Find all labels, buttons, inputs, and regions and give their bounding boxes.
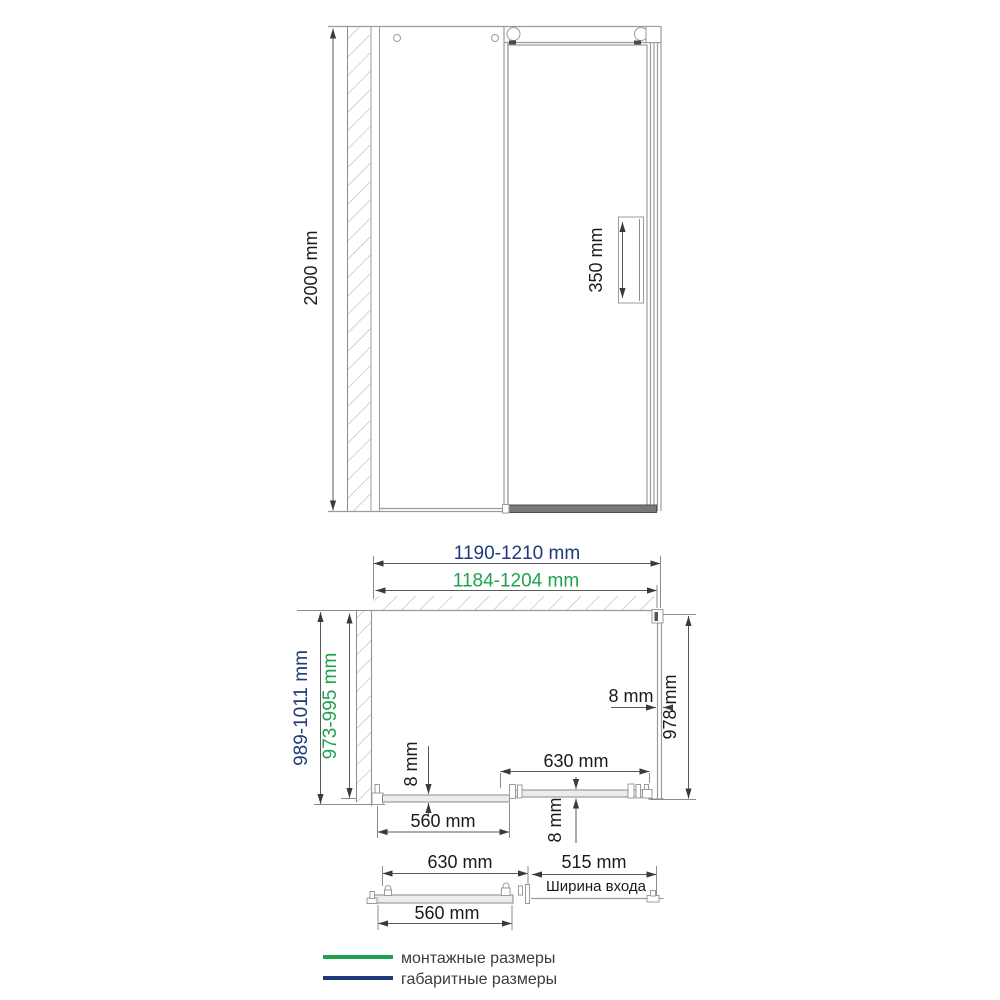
top-wall-hatch <box>297 596 663 611</box>
overall-dimensions-swatch <box>323 976 393 980</box>
sliding-door-panel <box>511 790 648 797</box>
corner-bracket <box>643 790 653 799</box>
roller-carriage-icon <box>510 785 516 799</box>
open-fixed-panel-width-label: 560 mm <box>414 903 479 923</box>
legend: монтажные размеры габаритные размеры <box>323 950 557 988</box>
open-door-view: 630 mm 515 mm Ширина входа 560 mm <box>367 852 664 930</box>
entry-width-caption: Ширина входа <box>546 878 647 895</box>
entry-width-label: 515 mm <box>561 852 626 872</box>
fixing-screw-icon <box>394 35 401 42</box>
mounting-dimensions-label: монтажные размеры <box>401 950 555 967</box>
rail-end-bracket <box>646 27 661 43</box>
roller-carriage-icon <box>628 784 634 798</box>
mounting-width-dimension-label: 1184-1204 mm <box>453 571 579 592</box>
fixed-glass-thickness-label: 8 mm <box>401 742 421 787</box>
right-wall-profile <box>651 27 662 512</box>
wall-profile <box>371 27 380 512</box>
mounting-dimensions-swatch <box>323 955 393 959</box>
overall-dimensions-label: габаритные размеры <box>401 971 557 988</box>
door-handle <box>619 217 644 303</box>
height-dimension-label: 2000 mm <box>301 230 321 305</box>
open-door-width-label: 630 mm <box>427 852 492 872</box>
side-glass-thickness-label: 8 mm <box>609 686 654 706</box>
side-panel-depth-label: 978 mm <box>660 674 680 739</box>
technical-drawing-canvas: 350 mm 2000 mm 1190-1210 mm 1184-1204 mm… <box>0 0 1000 1000</box>
door-width-dimension-label: 630 mm <box>543 751 608 771</box>
guide-block <box>519 886 523 895</box>
overall-width-dimension-label: 1190-1210 mm <box>454 543 580 564</box>
plan-view: 1190-1210 mm 1184-1204 mm 989-1011 mm 97… <box>291 543 696 843</box>
overall-depth-dimension-label: 989-1011 mm <box>291 650 312 766</box>
wall-hatch-strip <box>348 27 372 511</box>
sliding-door-panel-open <box>374 895 513 903</box>
door-glass-thickness-label: 8 mm <box>545 798 565 843</box>
front-elevation-view: 350 mm 2000 mm <box>301 27 661 514</box>
left-wall-hatch <box>357 611 372 807</box>
guide-block <box>526 885 530 904</box>
wall-bracket <box>372 793 383 805</box>
fixing-screw-icon <box>492 35 499 42</box>
fixed-glass-panel <box>383 795 510 802</box>
mounting-depth-dimension-label: 973-995 mm <box>320 653 341 760</box>
handle-length-dimension-label: 350 mm <box>586 227 606 292</box>
roller-icon <box>507 28 520 41</box>
fixed-panel-width-label: 560 mm <box>410 811 475 831</box>
